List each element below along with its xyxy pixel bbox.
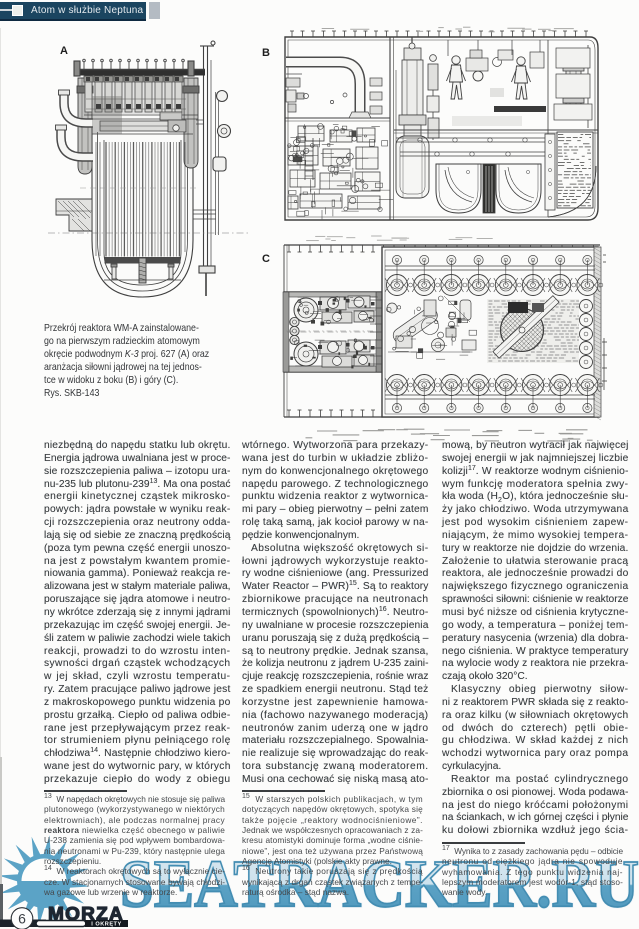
svg-text:A: A [60, 45, 68, 57]
svg-text:C: C [262, 253, 270, 265]
svg-text:B: B [262, 47, 270, 59]
svg-text:I OKRĘTY: I OKRĘTY [91, 922, 121, 928]
svg-text:6: 6 [18, 911, 26, 927]
